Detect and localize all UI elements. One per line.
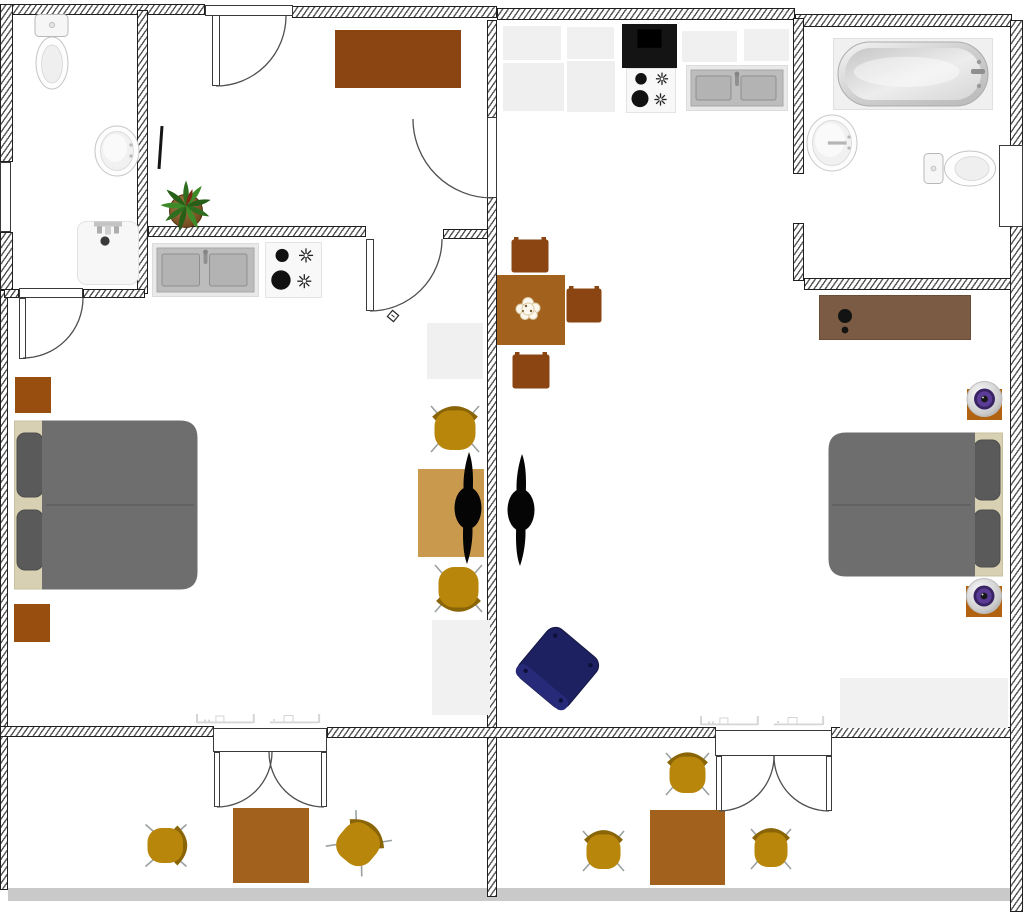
pen-object[interactable] — [158, 126, 164, 169]
cabinet-small-left[interactable] — [427, 323, 483, 379]
balcony-chair-right-east[interactable] — [750, 825, 792, 871]
double-bed-left[interactable] — [14, 420, 198, 590]
table-flower — [510, 290, 546, 324]
wall-divider-balcony — [487, 731, 497, 897]
door-leaf-kitchen-left[interactable] — [366, 239, 374, 311]
balcony-chair-left-east[interactable] — [324, 806, 396, 878]
dining-chair-north[interactable] — [511, 237, 549, 273]
wall-left-lower — [0, 290, 8, 890]
door-arc-balcony-right-b — [774, 756, 829, 811]
balcony-floor-strip — [8, 888, 1023, 901]
ceiling-fan-right[interactable] — [505, 452, 537, 568]
bathtub[interactable] — [833, 38, 993, 110]
door-leaf-top[interactable] — [212, 15, 220, 86]
dresser[interactable] — [819, 295, 971, 340]
wall-bath-right-west-lower — [793, 223, 804, 281]
wardrobe-left[interactable] — [432, 620, 490, 715]
door-leaf-balcony-right-b[interactable] — [826, 756, 832, 811]
wall-bath-left-bottom-west — [4, 289, 19, 298]
ceiling-fan-left[interactable] — [452, 450, 484, 566]
kitchen-sink-right[interactable] — [686, 65, 788, 111]
speaker-bottom[interactable] — [965, 578, 1003, 618]
stove-right[interactable] — [626, 68, 676, 113]
kitchen-sink-left[interactable] — [152, 243, 259, 297]
cabinet-6[interactable] — [744, 29, 789, 61]
balcony-chair-left-west[interactable] — [144, 824, 191, 868]
chair-desk-top[interactable] — [430, 402, 480, 454]
door-arc-divider — [413, 119, 492, 198]
toilet-left-bath[interactable] — [33, 13, 71, 91]
chair-desk-bottom[interactable] — [434, 563, 483, 616]
dining-chair-east[interactable] — [566, 286, 602, 323]
toilet-right-bath[interactable] — [923, 149, 997, 188]
wall-balcony-east — [831, 727, 1011, 738]
door-arc-top — [216, 16, 286, 86]
door-leaf-balcony-left-b[interactable] — [321, 752, 327, 807]
armchair-blue[interactable] — [502, 612, 615, 725]
door-frame-balcony-right[interactable] — [715, 730, 832, 756]
door-leaf-balcony-right-a[interactable] — [716, 756, 722, 811]
radiator-marks-right — [700, 708, 842, 726]
sink-left-bath[interactable] — [94, 125, 140, 177]
door-arc-bedroom-left — [23, 298, 83, 358]
cabinet-1[interactable] — [503, 26, 561, 60]
wall-balcony-mid — [327, 727, 716, 738]
range-hood[interactable] — [622, 24, 677, 68]
cabinet-4[interactable] — [567, 61, 615, 112]
wall-top-mid — [292, 6, 497, 18]
door-arc-balcony-left-b — [269, 752, 324, 807]
balcony-table-right[interactable] — [650, 810, 725, 885]
wall-top-right — [497, 8, 795, 20]
wall-left-mid — [0, 232, 13, 290]
balcony-chair-right-west[interactable] — [582, 827, 625, 873]
cabinet-3[interactable] — [567, 27, 614, 59]
wall-bath-right-west-upper — [793, 18, 804, 174]
door-frame-bedroom-left[interactable] — [19, 288, 83, 298]
door-frame-balcony-left[interactable] — [213, 728, 327, 752]
wall-bath-right-bottom — [804, 278, 1011, 290]
shower-tray[interactable] — [77, 221, 139, 285]
desk[interactable] — [335, 30, 461, 88]
sideboard-low-right[interactable] — [840, 678, 1008, 728]
sink-right-bath[interactable] — [806, 114, 858, 172]
nightstand-top[interactable] — [15, 377, 51, 413]
window-left — [0, 162, 11, 232]
cabinet-5[interactable] — [682, 31, 737, 62]
wall-divider-upper — [487, 20, 497, 118]
potted-plant[interactable] — [158, 180, 214, 232]
radiator-marks-left — [196, 706, 338, 724]
door-leaf-bath-right[interactable] — [999, 145, 1023, 227]
door-arc-balcony-left-a — [217, 752, 272, 807]
door-stop-symbol — [386, 309, 400, 323]
wall-balcony-west — [0, 726, 214, 737]
wall-top-far-right — [795, 14, 1012, 27]
door-leaf-balcony-left-a[interactable] — [214, 752, 220, 807]
floorplan — [0, 0, 1024, 916]
door-arc-balcony-right-a — [719, 756, 774, 811]
door-leaf-divider[interactable] — [487, 117, 497, 198]
balcony-chair-right-north[interactable] — [665, 749, 710, 797]
nightstand-bottom[interactable] — [14, 604, 50, 642]
speaker-top[interactable] — [966, 381, 1003, 421]
wall-left-upper — [0, 4, 13, 162]
balcony-table-left[interactable] — [233, 808, 309, 883]
door-leaf-bedroom-left[interactable] — [19, 298, 26, 359]
stove-left[interactable] — [265, 242, 322, 298]
wall-bath-left-bottom-east — [83, 289, 145, 298]
dining-chair-south[interactable] — [512, 352, 550, 389]
cabinet-2[interactable] — [503, 63, 564, 111]
double-bed-right[interactable] — [828, 432, 1003, 577]
door-arc-kitchen-left — [370, 239, 442, 311]
